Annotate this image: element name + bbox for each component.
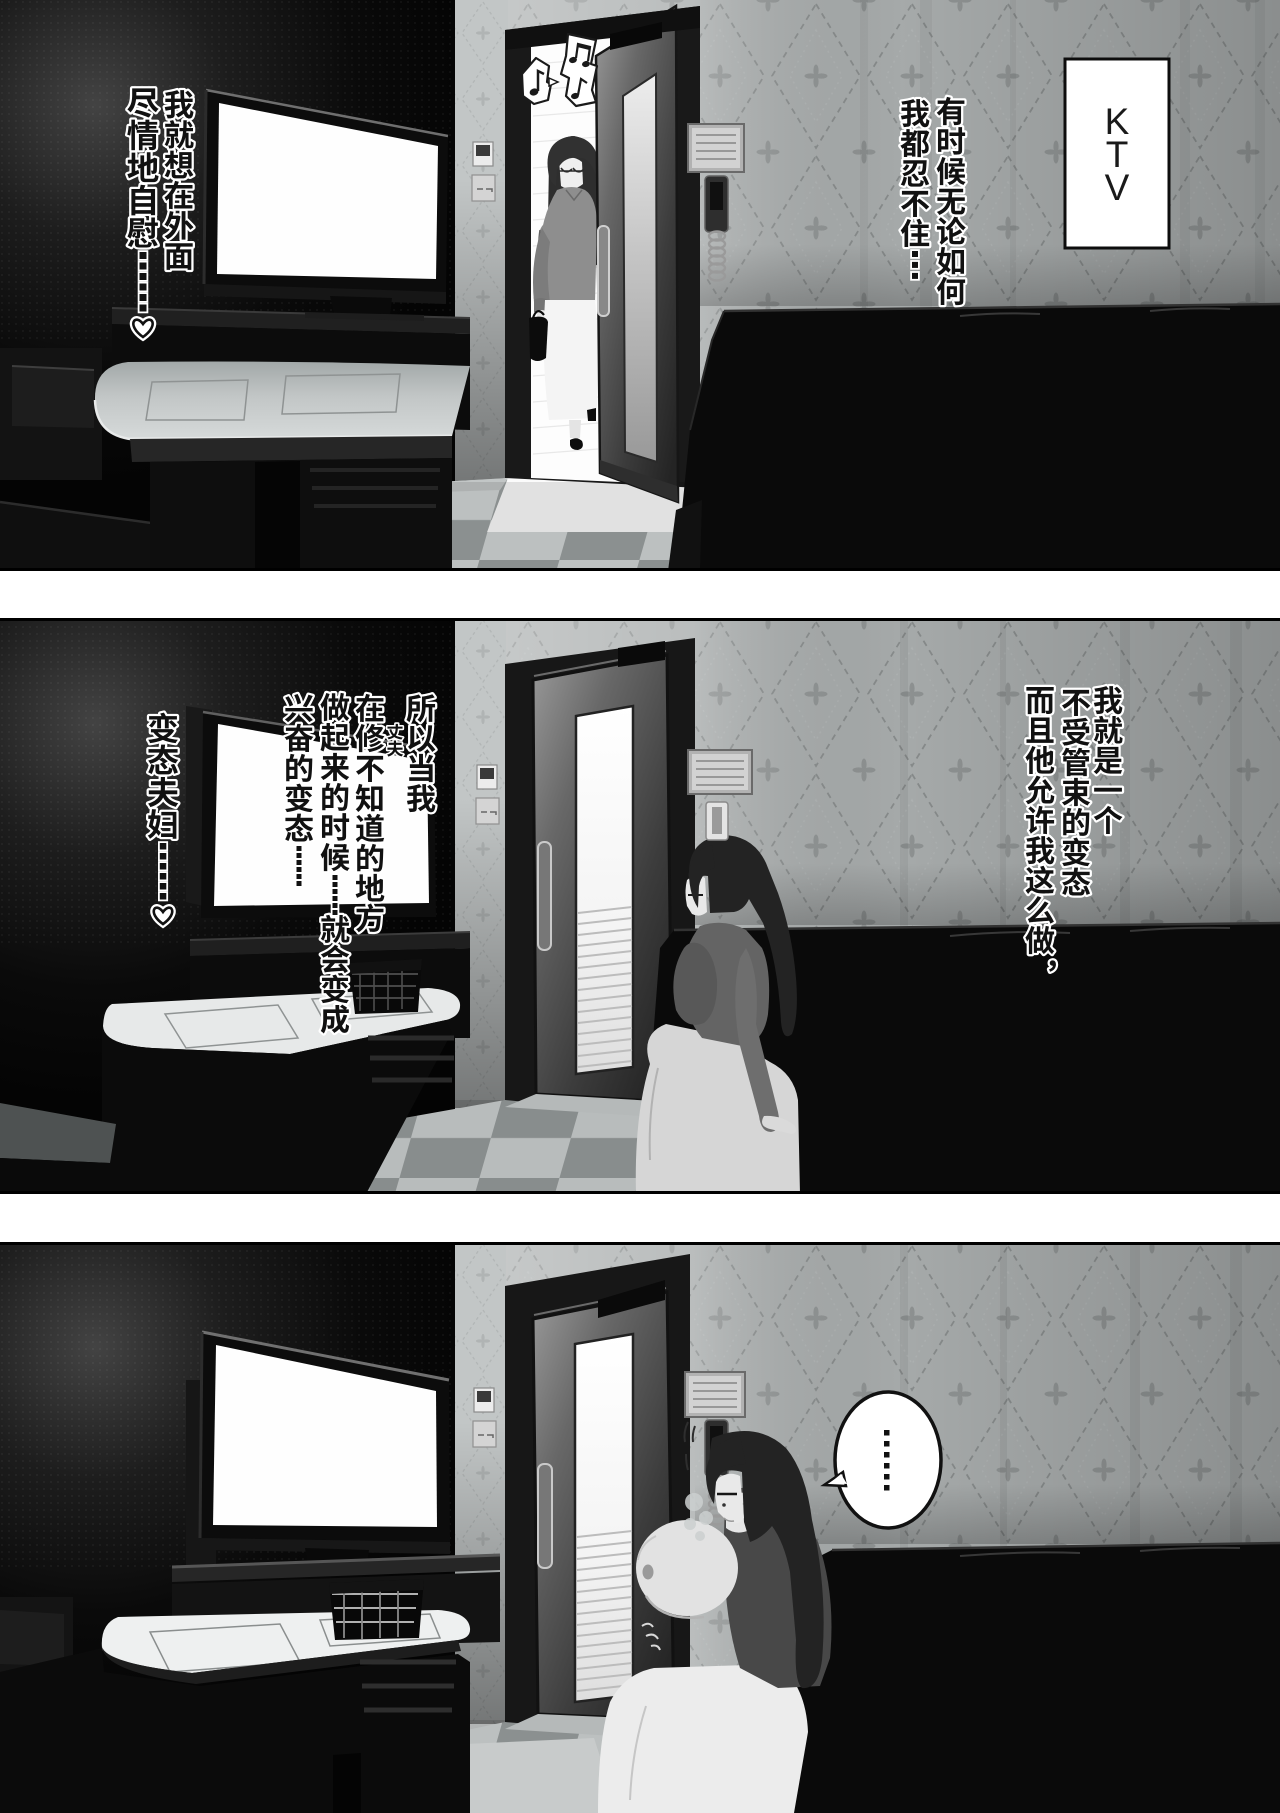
svg-text:V: V: [1105, 167, 1130, 208]
